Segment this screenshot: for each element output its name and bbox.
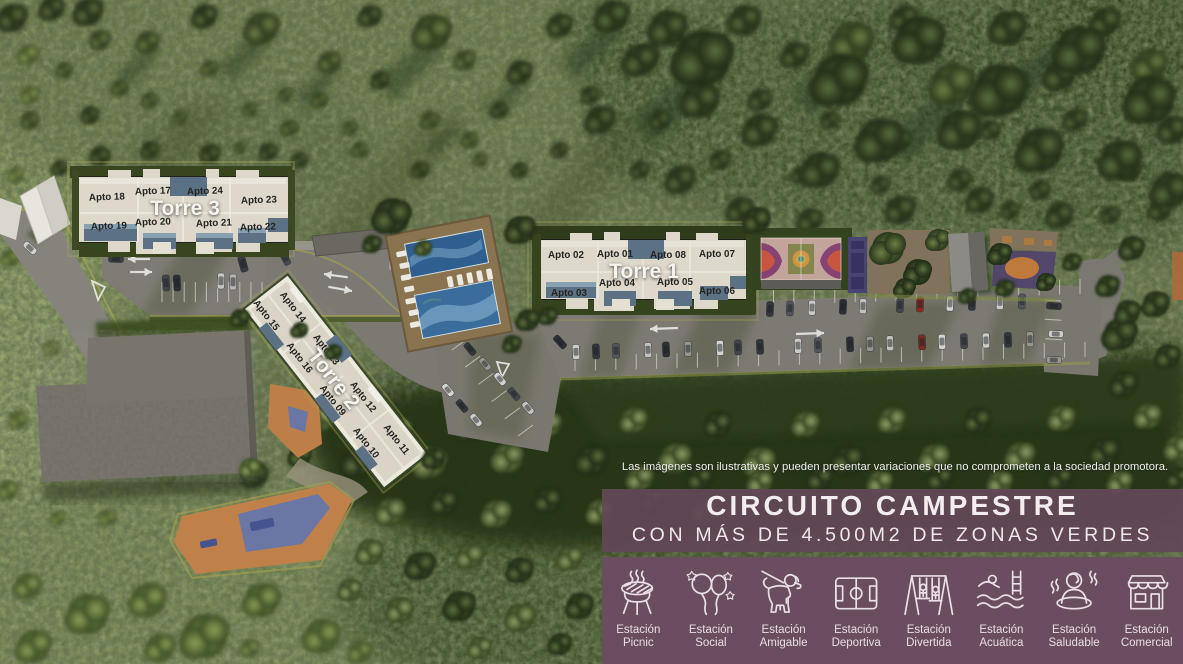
- svg-text:Torre 1: Torre 1: [609, 260, 679, 283]
- svg-text:Saludable: Saludable: [1049, 637, 1100, 649]
- svg-text:Estación: Estación: [689, 624, 733, 636]
- svg-text:Apto 17: Apto 17: [135, 185, 172, 197]
- svg-text:Apto 07: Apto 07: [699, 249, 735, 260]
- svg-text:Picnic: Picnic: [623, 637, 654, 649]
- svg-text:Comercial: Comercial: [1121, 637, 1173, 649]
- svg-text:Divertida: Divertida: [906, 637, 952, 649]
- svg-text:Amigable: Amigable: [760, 637, 808, 649]
- svg-text:Deportiva: Deportiva: [832, 637, 882, 649]
- svg-text:Estación: Estación: [979, 624, 1023, 636]
- svg-text:Las imágenes son ilustrativas: Las imágenes son ilustrativas y pueden p…: [622, 461, 1168, 473]
- svg-text:Apto 06: Apto 06: [699, 286, 735, 297]
- svg-text:Estación: Estación: [1125, 624, 1169, 636]
- svg-text:Apto 24: Apto 24: [187, 185, 224, 197]
- svg-text:Estación: Estación: [762, 624, 806, 636]
- svg-text:Apto 02: Apto 02: [548, 250, 584, 261]
- svg-text:Apto 23: Apto 23: [241, 194, 278, 206]
- svg-text:Apto 03: Apto 03: [551, 288, 587, 299]
- svg-text:Estación: Estación: [616, 624, 660, 636]
- svg-text:Estación: Estación: [907, 624, 951, 636]
- svg-text:Apto 19: Apto 19: [91, 220, 128, 232]
- svg-text:Apto 18: Apto 18: [89, 191, 126, 203]
- svg-text:Social: Social: [695, 637, 726, 649]
- svg-text:Torre 3: Torre 3: [150, 197, 220, 220]
- svg-text:Apto 22: Apto 22: [240, 221, 277, 233]
- svg-text:Apto 01: Apto 01: [597, 249, 633, 260]
- svg-text:Estación: Estación: [1052, 624, 1096, 636]
- svg-text:Acuática: Acuática: [979, 637, 1024, 649]
- svg-text:Estación: Estación: [834, 624, 878, 636]
